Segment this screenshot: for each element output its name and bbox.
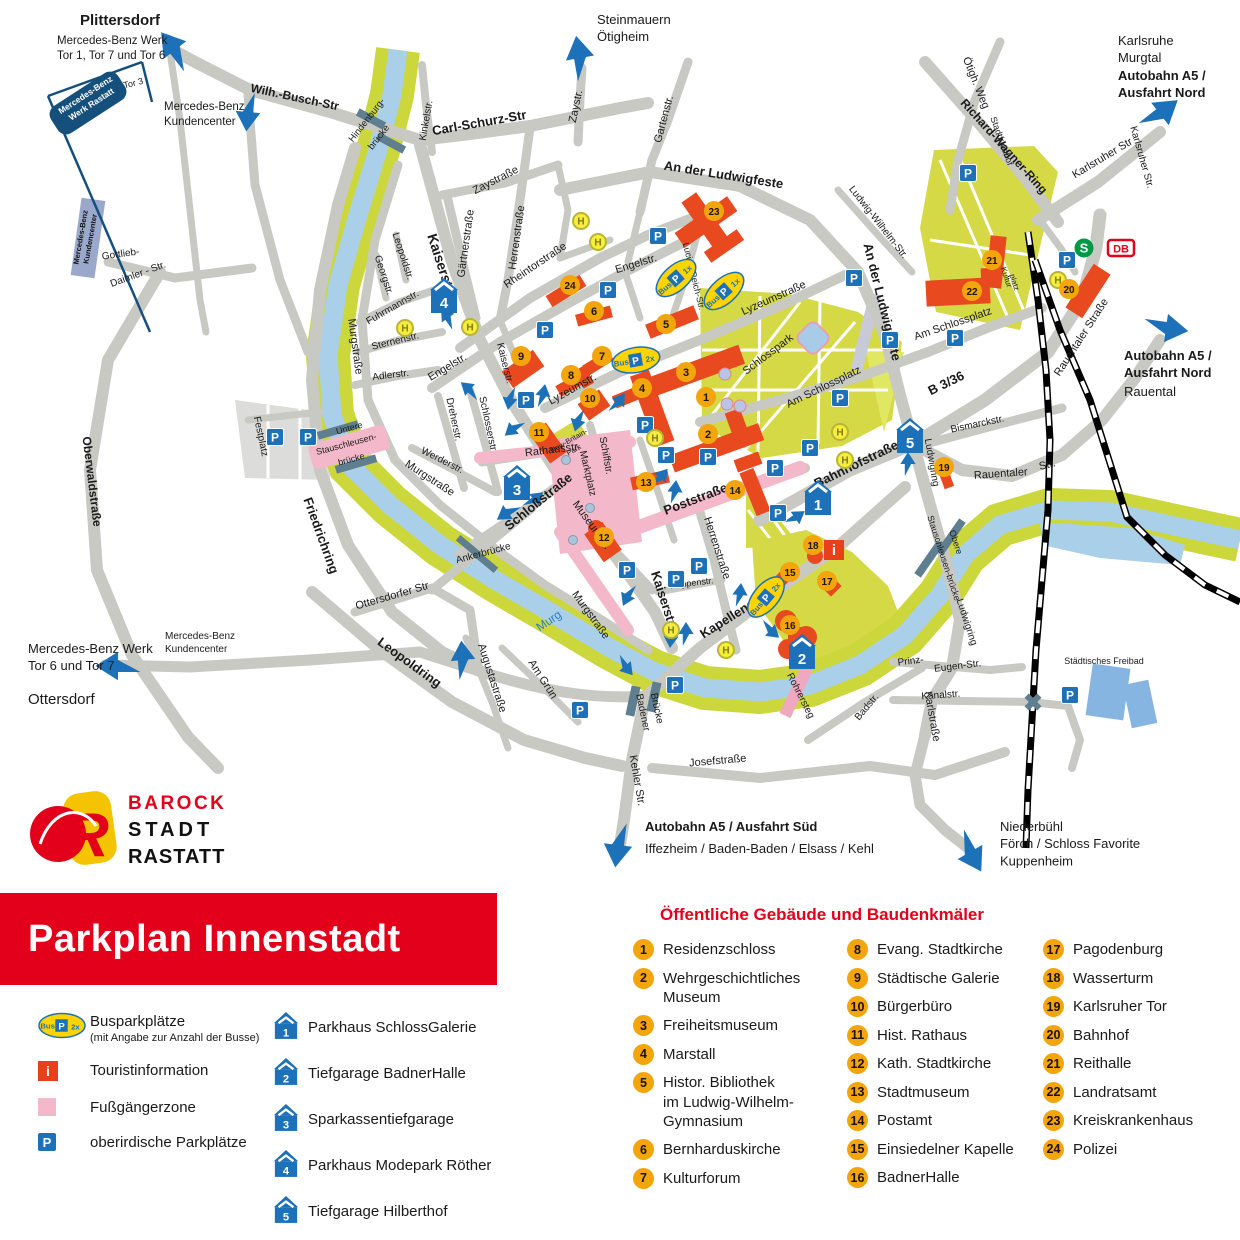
svg-text:Niederbühl: Niederbühl <box>1000 819 1063 834</box>
sbahn-icon: S <box>1075 239 1094 258</box>
building-marker: 7 <box>592 346 612 366</box>
building-marker: 22 <box>962 281 982 301</box>
svg-text:i: i <box>832 542 836 559</box>
destination-label: Rauental <box>1124 384 1176 399</box>
surface-parking-icon: P <box>38 1133 90 1151</box>
building-number-badge: 15 <box>847 1139 868 1160</box>
building-marker: 1 <box>696 387 716 407</box>
building-list-item: 23Kreiskrankenhaus <box>1043 1111 1238 1131</box>
building-label: Freiheitsmuseum <box>663 1016 778 1036</box>
building-number-badge: 11 <box>847 1025 868 1046</box>
destination-label: Ottersdorf <box>28 691 96 708</box>
garage-list-item: 3Sparkassentiefgarage <box>273 1102 573 1137</box>
street-label: Leopoldstr. <box>390 231 416 281</box>
garage-marker: 5 <box>896 418 924 453</box>
svg-text:P: P <box>576 704 584 718</box>
svg-text:Mercedes-Benz: Mercedes-Benz <box>164 101 245 113</box>
svg-text:P: P <box>704 451 712 465</box>
svg-text:Tor 6 und Tor 7: Tor 6 und Tor 7 <box>28 658 114 673</box>
building-label: Polizei <box>1073 1140 1117 1160</box>
building-label-line: Bernharduskirche <box>663 1140 781 1160</box>
parking-icon: P <box>691 558 708 575</box>
building-list-item: 5Histor. Bibliothekim Ludwig-Wilhelm-Gym… <box>633 1073 838 1132</box>
building-number-badge: 10 <box>847 996 868 1017</box>
building-label-line: Stadtmuseum <box>877 1083 970 1103</box>
building-list-item: 24Polizei <box>1043 1140 1238 1160</box>
destination-label: KarlsruheMurgtal <box>1118 33 1174 65</box>
building-list-item: 17Pagodenburg <box>1043 940 1238 960</box>
svg-text:19: 19 <box>938 463 950 474</box>
svg-text:Kuppenheim: Kuppenheim <box>1000 853 1073 868</box>
building-label-line: Landratsamt <box>1073 1083 1156 1103</box>
parking-icon: P <box>767 460 784 477</box>
destination-label: SteinmauernÖtigheim <box>597 12 671 44</box>
building-label-line: Residenzschloss <box>663 940 776 960</box>
building-list-item: 1Residenzschloss <box>633 940 838 960</box>
building-number-badge: 24 <box>1043 1139 1064 1160</box>
bus-stop-icon: H <box>663 622 679 638</box>
svg-text:8: 8 <box>568 370 574 382</box>
building-marker: 23 <box>704 201 724 221</box>
svg-text:P: P <box>662 449 670 463</box>
building-label: Pagodenburg <box>1073 940 1163 960</box>
building-label: Städtische Galerie <box>877 969 1000 989</box>
svg-text:H: H <box>594 238 601 249</box>
parking-icon: P <box>700 449 717 466</box>
svg-text:16: 16 <box>784 621 796 632</box>
svg-text:2x: 2x <box>71 1022 80 1031</box>
building-number-badge: 17 <box>1043 939 1064 960</box>
parking-icon: P <box>947 330 964 347</box>
svg-text:H: H <box>577 217 584 228</box>
building-list-item: 21Reithalle <box>1043 1054 1238 1074</box>
building-number-badge: 13 <box>847 1082 868 1103</box>
svg-text:P: P <box>654 230 662 244</box>
building-list-item: 8Evang. Stadtkirche <box>847 940 1039 960</box>
building-label-line: Museum <box>663 988 800 1008</box>
building-label: Residenzschloss <box>663 940 776 960</box>
bus-stop-icon: H <box>832 424 848 440</box>
svg-text:Mercedes-Benz Werk: Mercedes-Benz Werk <box>57 35 168 47</box>
svg-text:2: 2 <box>705 429 711 441</box>
svg-text:Murgtal: Murgtal <box>1118 50 1161 65</box>
svg-text:P: P <box>951 332 959 346</box>
parking-icon: P <box>832 390 849 407</box>
parking-icon: P <box>518 392 535 409</box>
building-label: Wasserturm <box>1073 969 1153 989</box>
title-banner: Parkplan Innenstadt <box>0 893 497 985</box>
garage-list-item: 1Parkhaus SchlossGalerie <box>273 1010 573 1045</box>
building-number-badge: 4 <box>633 1044 654 1065</box>
building-label: Kreiskrankenhaus <box>1073 1111 1193 1131</box>
svg-text:P: P <box>1063 254 1071 268</box>
building-number-badge: 21 <box>1043 1053 1064 1074</box>
street-label: Str. <box>1038 457 1057 473</box>
building-marker: 10 <box>580 388 600 408</box>
building-number-badge: 6 <box>633 1139 654 1160</box>
building-marker: 20 <box>1059 279 1079 299</box>
garage-label: Tiefgarage Hilberthof <box>308 1203 448 1220</box>
destination-label: Iffezheim / Baden-Baden / Elsass / Kehl <box>645 841 874 856</box>
bus-stop-icon: H <box>462 319 478 335</box>
building-marker: 24 <box>560 275 580 295</box>
svg-text:H: H <box>667 626 674 637</box>
building-label-line: Wehrgeschichtliches <box>663 969 800 989</box>
svg-text:P: P <box>641 419 649 433</box>
building-list-item: 22Landratsamt <box>1043 1083 1238 1103</box>
building-marker: 16 <box>780 615 800 635</box>
svg-text:P: P <box>850 272 858 286</box>
garage-list-item: 5Tiefgarage Hilberthof <box>273 1194 573 1229</box>
bus-stop-icon: H <box>573 213 589 229</box>
building-number-badge: 12 <box>847 1053 868 1074</box>
building-label: Histor. Bibliothekim Ludwig-Wilhelm-Gymn… <box>663 1073 794 1132</box>
building-label: Kath. Stadtkirche <box>877 1054 991 1074</box>
parking-icon: P <box>802 440 819 457</box>
parking-icon: P <box>537 322 554 339</box>
db-icon: DB <box>1108 240 1134 256</box>
building-marker: 3 <box>676 362 696 382</box>
building-label: Bahnhof <box>1073 1026 1129 1046</box>
building-marker: 21 <box>982 250 1002 270</box>
svg-text:Rauental: Rauental <box>1124 384 1176 399</box>
garage-icon: 3 <box>273 1102 299 1137</box>
building-number-badge: 16 <box>847 1167 868 1188</box>
svg-text:3: 3 <box>683 367 689 379</box>
parking-icon: P <box>846 270 863 287</box>
building-label: Hist. Rathaus <box>877 1026 967 1046</box>
svg-text:P: P <box>672 573 680 587</box>
street-label: Adlerstr. <box>372 368 410 383</box>
building-label-line: Städtische Galerie <box>877 969 1000 989</box>
building-number-badge: 2 <box>633 968 654 989</box>
svg-text:P: P <box>623 564 631 578</box>
svg-text:P: P <box>836 392 844 406</box>
svg-text:Karlsruhe: Karlsruhe <box>1118 33 1174 48</box>
building-list-item: 18Wasserturm <box>1043 969 1238 989</box>
building-list-item: 4Marstall <box>633 1045 838 1065</box>
pedestrian-zone-icon <box>38 1098 90 1116</box>
svg-text:DB: DB <box>1113 244 1129 256</box>
building-list-item: 12Kath. Stadtkirche <box>847 1054 1039 1074</box>
building-list-item: 6Bernharduskirche <box>633 1140 838 1160</box>
building-label-line: BadnerHalle <box>877 1168 960 1188</box>
destination-label: Autobahn A5 / Ausfahrt Süd <box>645 819 817 834</box>
svg-text:7: 7 <box>599 351 605 363</box>
building-label: Marstall <box>663 1045 716 1065</box>
building-number-badge: 9 <box>847 968 868 989</box>
building-label-line: Histor. Bibliothek <box>663 1073 794 1093</box>
svg-text:Bus: Bus <box>40 1021 55 1030</box>
svg-text:4: 4 <box>283 1166 290 1178</box>
parking-icon: P <box>668 571 685 588</box>
legend-item: Poberirdische Parkplätze <box>38 1133 303 1151</box>
building-number-badge: 18 <box>1043 968 1064 989</box>
svg-text:Tor 1, Tor 7 und Tor 6: Tor 1, Tor 7 und Tor 6 <box>57 50 165 62</box>
legend: BusP2xBusparkplätze(mit Angabe zur Anzah… <box>38 1012 303 1168</box>
svg-text:9: 9 <box>518 351 524 363</box>
svg-text:5: 5 <box>283 1212 289 1224</box>
tourist-info-icon: i <box>38 1061 90 1081</box>
building-number-badge: 3 <box>633 1015 654 1036</box>
building-label-line: Polizei <box>1073 1140 1117 1160</box>
garage-label: Tiefgarage BadnerHalle <box>308 1065 466 1082</box>
garage-icon: 4 <box>273 1148 299 1183</box>
building-marker: 4 <box>632 378 652 398</box>
building-label: Bernharduskirche <box>663 1140 781 1160</box>
street-label: Georgstr. <box>372 254 395 297</box>
buildings-column-3: 17Pagodenburg18Wasserturm19Karlsruher To… <box>1043 940 1238 1168</box>
bus-stop-icon: H <box>718 642 734 658</box>
building-label-line: Bahnhof <box>1073 1026 1129 1046</box>
parking-icon: P <box>300 429 317 446</box>
bus-parking-icon: BusP2x <box>38 1012 90 1039</box>
building-marker: 6 <box>584 301 604 321</box>
street-label: B 3/36 <box>926 368 967 398</box>
svg-text:18: 18 <box>807 541 819 552</box>
building-label-line: Freiheitsmuseum <box>663 1016 778 1036</box>
parking-icon: P <box>619 562 636 579</box>
building-list-item: 13Stadtmuseum <box>847 1083 1039 1103</box>
svg-text:Autobahn A5 /: Autobahn A5 / <box>1118 68 1206 83</box>
building-label-line: im Ludwig-Wilhelm- <box>663 1093 794 1113</box>
svg-text:14: 14 <box>729 486 741 497</box>
svg-text:Autobahn A5 / Ausfahrt Süd: Autobahn A5 / Ausfahrt Süd <box>645 819 817 834</box>
svg-text:22: 22 <box>966 287 978 298</box>
building-marker: 17 <box>817 571 837 591</box>
parking-icon: P <box>1062 687 1079 704</box>
building-label-line: Einsiedelner Kapelle <box>877 1140 1014 1160</box>
svg-text:Autobahn A5 /: Autobahn A5 / <box>1124 348 1212 363</box>
building-marker: 18 <box>803 535 823 555</box>
building-marker: 14 <box>725 480 745 500</box>
building-marker: 12 <box>594 527 614 547</box>
svg-text:Ausfahrt Nord: Ausfahrt Nord <box>1124 365 1211 380</box>
svg-text:15: 15 <box>784 568 796 579</box>
parking-icon: P <box>267 429 284 446</box>
bus-stop-icon: H <box>837 452 853 468</box>
parking-icon: P <box>667 677 684 694</box>
svg-text:P: P <box>541 324 549 338</box>
svg-text:Mercedes-Benz Werk: Mercedes-Benz Werk <box>28 641 153 656</box>
building-number-badge: 20 <box>1043 1025 1064 1046</box>
building-list-item: 7Kulturforum <box>633 1169 838 1189</box>
building-label-line: Karlsruher Tor <box>1073 997 1167 1017</box>
destination-label: Mercedes-Benz WerkTor 1, Tor 7 und Tor 6 <box>57 35 168 62</box>
street-label: Engelstr. <box>614 252 658 276</box>
svg-text:P: P <box>964 167 972 181</box>
building-label: Einsiedelner Kapelle <box>877 1140 1014 1160</box>
buildings-header: Öffentliche Gebäude und Baudenkmäler <box>660 905 984 925</box>
building-list-item: 14Postamt <box>847 1111 1039 1131</box>
building-label-line: Bürgerbüro <box>877 997 952 1017</box>
svg-text:P: P <box>58 1021 65 1032</box>
svg-text:20: 20 <box>1063 285 1075 296</box>
svg-text:P: P <box>806 442 814 456</box>
building-marker: 11 <box>529 422 549 442</box>
garage-icon: 1 <box>273 1010 299 1045</box>
bus-stop-icon: H <box>397 320 413 336</box>
svg-text:Ottersdorf: Ottersdorf <box>28 691 96 708</box>
building-marker: 15 <box>780 562 800 582</box>
svg-text:Förch / Schloss Favorite: Förch / Schloss Favorite <box>1000 836 1140 851</box>
tourist-info-icon: i <box>824 540 844 560</box>
street-label: Oberwaldstraße <box>79 436 104 528</box>
svg-text:Plittersdorf: Plittersdorf <box>80 12 161 29</box>
svg-text:6: 6 <box>591 306 597 318</box>
street-label: Gottlieb- <box>101 246 140 262</box>
svg-text:S: S <box>1080 241 1089 256</box>
svg-text:17: 17 <box>821 577 833 588</box>
svg-text:P: P <box>1066 689 1074 703</box>
garage-label: Parkhaus Modepark Röther <box>308 1157 491 1174</box>
legend-item: Fußgängerzone <box>38 1098 303 1116</box>
svg-text:21: 21 <box>986 256 998 267</box>
building-marker: 9 <box>511 346 531 366</box>
building-number-badge: 19 <box>1043 996 1064 1017</box>
parking-icon: P <box>600 282 617 299</box>
svg-text:5: 5 <box>906 435 914 452</box>
building-label-line: Reithalle <box>1073 1054 1131 1074</box>
bus-stop-icon: H <box>590 234 606 250</box>
svg-text:Mercedes-Benz: Mercedes-Benz <box>165 631 235 642</box>
svg-text:1: 1 <box>703 392 709 404</box>
legend-item-label: Touristinformation <box>90 1061 208 1079</box>
barock-stadt-rastatt-logo: R BAROCK STADT RASTATT <box>30 786 226 872</box>
building-label-line: Kath. Stadtkirche <box>877 1054 991 1074</box>
logo-line-1: BAROCK <box>128 790 226 817</box>
svg-text:10: 10 <box>584 394 596 405</box>
bus-stop-icon: H <box>647 430 663 446</box>
garage-icon: 2 <box>273 1056 299 1091</box>
parking-icon: P <box>960 165 977 182</box>
svg-text:Iffezheim / Baden-Baden / Elsa: Iffezheim / Baden-Baden / Elsass / Kehl <box>645 841 874 856</box>
parking-icon: P <box>770 505 787 522</box>
building-number-badge: 7 <box>633 1168 654 1189</box>
svg-text:13: 13 <box>640 478 652 489</box>
svg-text:Ausfahrt Nord: Ausfahrt Nord <box>1118 85 1205 100</box>
parking-garage-list: 1Parkhaus SchlossGalerie2Tiefgarage Badn… <box>273 1010 573 1240</box>
svg-text:P: P <box>771 462 779 476</box>
building-list-item: 16BadnerHalle <box>847 1168 1039 1188</box>
street-label: Tor 3 <box>122 76 144 91</box>
svg-text:1: 1 <box>814 497 822 514</box>
logo-line-2: STADT <box>128 817 226 844</box>
building-label: Karlsruher Tor <box>1073 997 1167 1017</box>
garage-label: Parkhaus SchlossGalerie <box>308 1019 476 1036</box>
building-marker: 2 <box>698 424 718 444</box>
building-label: Bürgerbüro <box>877 997 952 1017</box>
building-marker: 13 <box>636 472 656 492</box>
street-label: Fuhrmannstr. <box>364 288 421 327</box>
svg-text:H: H <box>466 323 473 334</box>
building-marker: 8 <box>561 365 581 385</box>
building-label: Kulturforum <box>663 1169 741 1189</box>
building-label: Reithalle <box>1073 1054 1131 1074</box>
svg-text:H: H <box>841 456 848 467</box>
svg-text:5: 5 <box>663 319 669 331</box>
building-number-badge: 5 <box>633 1072 654 1093</box>
building-label-line: Gymnasium <box>663 1112 794 1132</box>
building-label: Evang. Stadtkirche <box>877 940 1003 960</box>
svg-text:P: P <box>304 431 312 445</box>
building-list-item: 2WehrgeschichtlichesMuseum <box>633 969 838 1008</box>
svg-text:4: 4 <box>440 295 449 312</box>
building-label: Postamt <box>877 1111 932 1131</box>
svg-text:H: H <box>651 434 658 445</box>
garage-label: Sparkassentiefgarage <box>308 1111 454 1128</box>
building-label: Landratsamt <box>1073 1083 1156 1103</box>
parking-icon: P <box>882 332 899 349</box>
legend-item-sub: (mit Angabe zur Anzahl der Busse) <box>90 1032 259 1044</box>
garage-list-item: 2Tiefgarage BadnerHalle <box>273 1056 573 1091</box>
parking-icon: P <box>572 702 589 719</box>
svg-text:2: 2 <box>798 651 806 668</box>
building-list-item: 15Einsiedelner Kapelle <box>847 1140 1039 1160</box>
direction-arrow-icon <box>678 622 693 646</box>
svg-text:12: 12 <box>598 533 610 544</box>
building-label-line: Evang. Stadtkirche <box>877 940 1003 960</box>
svg-text:Kundencenter: Kundencenter <box>164 116 236 128</box>
building-label: BadnerHalle <box>877 1168 960 1188</box>
building-label-line: Kulturforum <box>663 1169 741 1189</box>
building-number-badge: 14 <box>847 1110 868 1131</box>
building-number-badge: 22 <box>1043 1082 1064 1103</box>
parking-icon: P <box>658 447 675 464</box>
street-label: Rauentaler <box>974 466 1029 482</box>
street-label: Städtisches Freibad <box>1064 656 1144 666</box>
svg-text:2: 2 <box>283 1074 289 1086</box>
svg-text:P: P <box>671 679 679 693</box>
destination-label: Mercedes-BenzKundencenter <box>165 631 235 655</box>
svg-text:P: P <box>774 507 782 521</box>
svg-text:H: H <box>836 428 843 439</box>
svg-text:P: P <box>522 394 530 408</box>
legend-item-label: Fußgängerzone <box>90 1098 196 1116</box>
building-label: WehrgeschichtlichesMuseum <box>663 969 800 1008</box>
buildings-column-2: 8Evang. Stadtkirche9Städtische Galerie10… <box>847 940 1039 1197</box>
garage-icon: 5 <box>273 1194 299 1229</box>
svg-text:Steinmauern: Steinmauern <box>597 12 671 27</box>
svg-text:P: P <box>695 560 703 574</box>
svg-text:11: 11 <box>534 428 545 439</box>
svg-text:P: P <box>271 431 279 445</box>
building-label-line: Wasserturm <box>1073 969 1153 989</box>
logo-line-3: RASTATT <box>128 844 226 871</box>
building-label-line: Kreiskrankenhaus <box>1073 1111 1193 1131</box>
building-marker: 19 <box>934 457 954 477</box>
svg-text:3: 3 <box>513 482 521 499</box>
building-list-item: 11Hist. Rathaus <box>847 1026 1039 1046</box>
street-label: Josefstraße <box>689 753 747 770</box>
legend-item-label: Busparkplätze(mit Angabe zur Anzahl der … <box>90 1012 259 1044</box>
svg-text:H: H <box>401 324 408 335</box>
parking-icon: P <box>1059 252 1076 269</box>
buildings-column-1: 1Residenzschloss2WehrgeschichtlichesMuse… <box>633 940 838 1197</box>
destination-label: NiederbühlFörch / Schloss FavoriteKuppen… <box>1000 819 1140 868</box>
destination-label: Plittersdorf <box>80 12 161 29</box>
building-number-badge: 23 <box>1043 1110 1064 1131</box>
building-label-line: Marstall <box>663 1045 716 1065</box>
svg-text:P: P <box>886 334 894 348</box>
page-title: Parkplan Innenstadt <box>28 918 401 961</box>
garage-list-item: 4Parkhaus Modepark Röther <box>273 1148 573 1183</box>
svg-text:Kundencenter: Kundencenter <box>165 644 228 655</box>
building-label-line: Hist. Rathaus <box>877 1026 967 1046</box>
city-map: Wilh.-Busch-StrCarl-Schurz-StrZaystr.Zay… <box>0 0 1240 892</box>
svg-text:Ötigheim: Ötigheim <box>597 29 649 44</box>
svg-text:24: 24 <box>564 281 576 292</box>
